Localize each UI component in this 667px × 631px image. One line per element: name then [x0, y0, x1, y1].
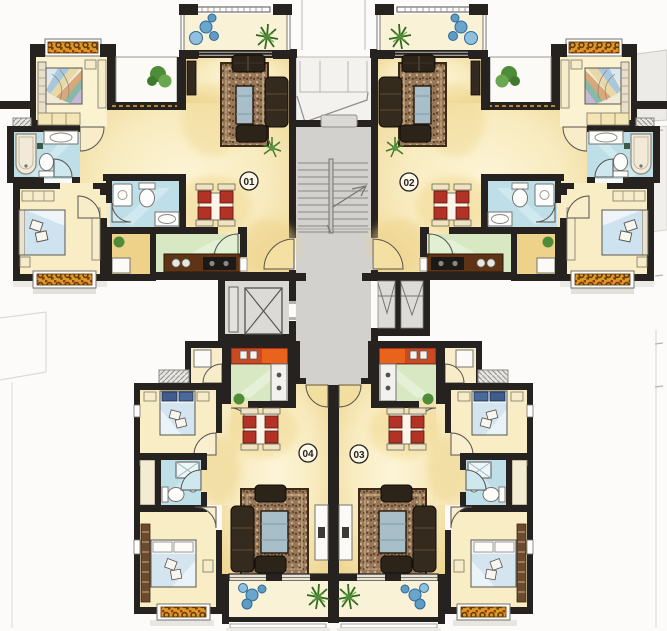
svg-text:01: 01 [243, 177, 255, 188]
svg-text:03: 03 [353, 450, 365, 461]
svg-text:04: 04 [302, 449, 314, 460]
svg-text:02: 02 [403, 178, 415, 189]
